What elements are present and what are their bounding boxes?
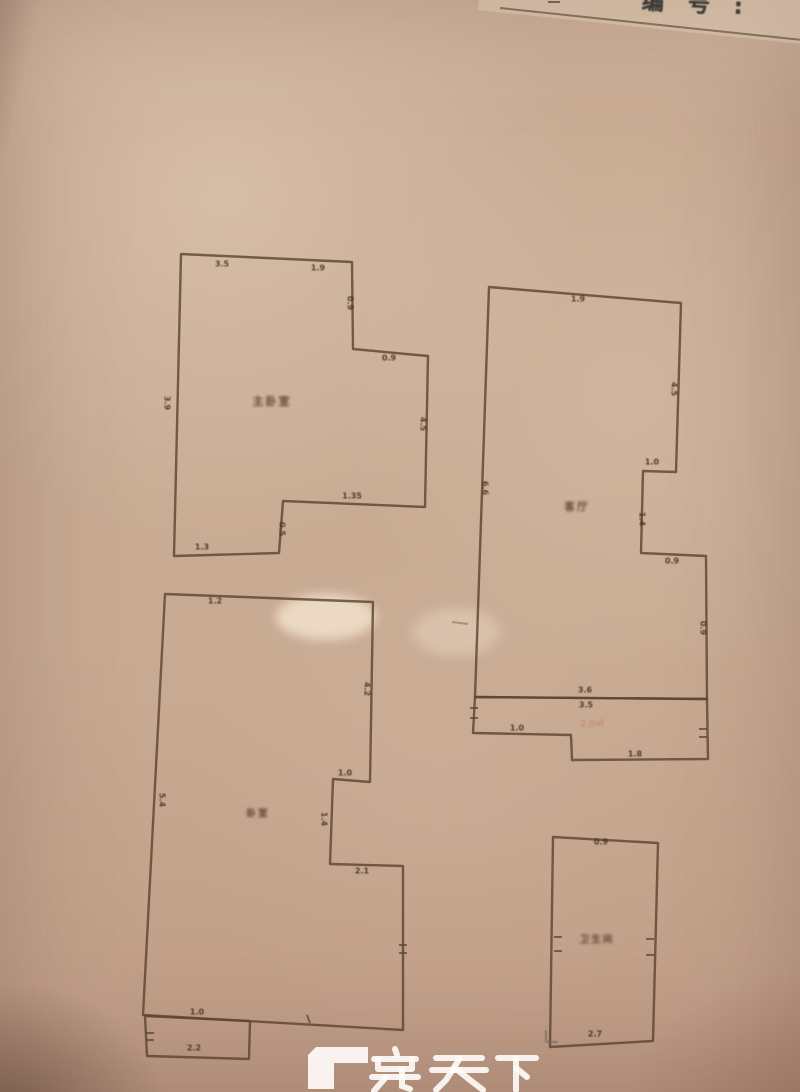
dim-label-b8: 3.5: [579, 701, 594, 710]
dim-label-b3: 1.0: [645, 458, 660, 467]
dim-label-c1: 1.2: [208, 597, 222, 606]
dim-label-b10: 1.8: [628, 750, 643, 759]
paper-edge-line: [500, 8, 800, 40]
dim-label-c7: 1.0: [190, 1008, 205, 1017]
room-label-bottom-left: 卧室: [246, 808, 269, 820]
room-label-top-right: 客厅: [564, 500, 590, 513]
floor-plan-drawing: 3.5 1.9 0.9 0.9 4.5 3.9 1.35 0.5 1.3 1.9…: [0, 0, 800, 1092]
dim-label-b5: 0.9: [665, 557, 680, 566]
fang-watermark: [300, 1026, 570, 1092]
dim-label-b4: 1.4: [638, 512, 647, 527]
dim-label-b1: 1.9: [571, 295, 586, 304]
dim-label-b11: 0.9: [699, 621, 708, 636]
room-label-bottom-right: 卫生间: [580, 934, 615, 946]
dim-label-d1: 0.9: [594, 838, 609, 847]
floorplan-photo: 编号: 3.5 1.9 0.9 0.9 4.5 3.9 1.35: [0, 0, 800, 1092]
window-tick: [646, 939, 654, 955]
dim-label-a2: 1.9: [311, 264, 326, 273]
dim-label-b9: 1.0: [510, 724, 525, 733]
dim-label-c8: 2.2: [187, 1044, 201, 1053]
room-bottom-left-outline: [143, 594, 403, 1030]
bay-window-outline: [145, 1016, 250, 1059]
dim-label-a8: 0.5: [278, 522, 287, 537]
dim-label-a1: 3.5: [215, 260, 230, 269]
dim-label-c5: 2.1: [355, 867, 370, 876]
dim-label-c4: 1.4: [320, 812, 329, 827]
dim-label-c6: 5.4: [158, 793, 167, 808]
red-stamp-text: 2.0㎡: [580, 719, 603, 730]
corner-bracket-mark: [546, 1030, 558, 1042]
dim-label-a7: 1.35: [342, 492, 362, 501]
wall-tick: [699, 729, 707, 737]
dim-label-b6: 6.6: [481, 481, 490, 496]
dim-label-a5: 4.5: [419, 417, 428, 432]
dim-label-a4: 0.9: [382, 354, 397, 363]
dim-label-a3: 0.9: [346, 296, 355, 311]
dim-label-c2: 4.2: [363, 682, 372, 696]
window-tick: [554, 937, 562, 951]
dim-label-a9: 1.3: [195, 543, 209, 552]
dim-label-b2: 4.5: [670, 382, 679, 397]
dim-label-c3: 1.0: [338, 769, 353, 778]
dim-label-a6: 3.9: [163, 396, 172, 411]
room-label-top-left: 主卧室: [253, 394, 292, 408]
room-top-right-outline: [475, 287, 707, 699]
room-top-left-outline: [174, 254, 428, 556]
watermark-brand-strokes: [372, 1049, 536, 1091]
fang-logo-icon: [308, 1047, 368, 1089]
wall-tick: [307, 1015, 310, 1023]
dim-label-d2: 2.7: [588, 1030, 602, 1039]
wall-tick: [452, 622, 468, 624]
dim-label-b7: 3.6: [578, 686, 593, 695]
